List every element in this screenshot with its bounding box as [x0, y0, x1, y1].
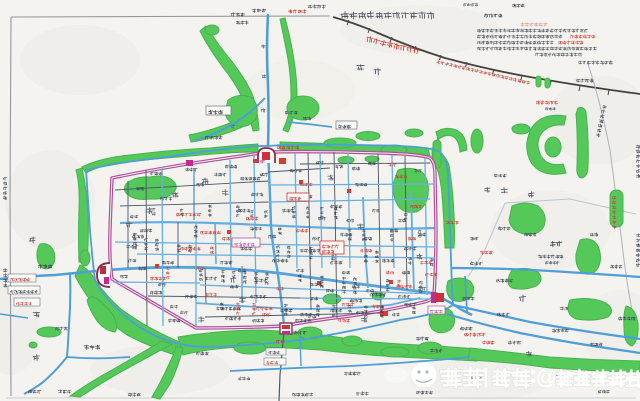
svg-text:|: | — [483, 366, 489, 388]
svg-text:@: @ — [536, 366, 556, 389]
